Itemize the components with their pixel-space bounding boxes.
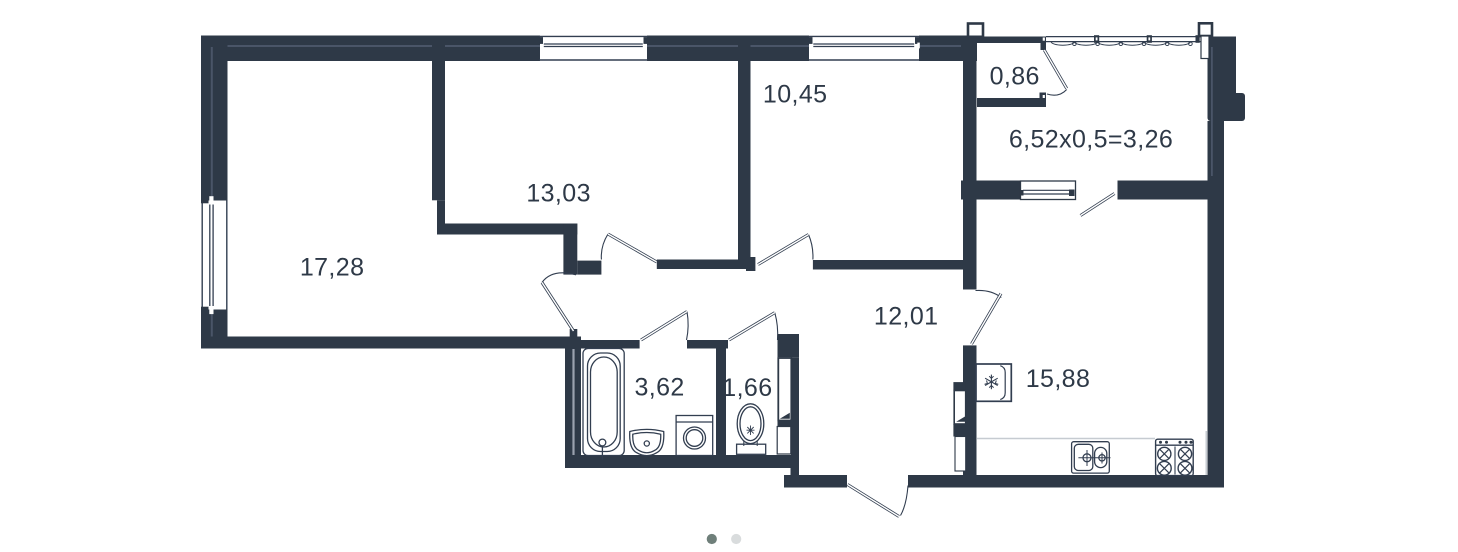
svg-text:1,66: 1,66 — [722, 374, 772, 402]
svg-text:6,52x0,5=3,26: 6,52x0,5=3,26 — [1009, 126, 1173, 154]
svg-text:15,88: 15,88 — [1026, 365, 1091, 393]
svg-text:0,86: 0,86 — [990, 62, 1040, 90]
svg-text:13,03: 13,03 — [526, 180, 591, 208]
svg-text:12,01: 12,01 — [874, 303, 939, 331]
svg-text:3,62: 3,62 — [634, 373, 684, 401]
svg-text:10,45: 10,45 — [763, 81, 828, 109]
svg-text:17,28: 17,28 — [300, 253, 365, 281]
